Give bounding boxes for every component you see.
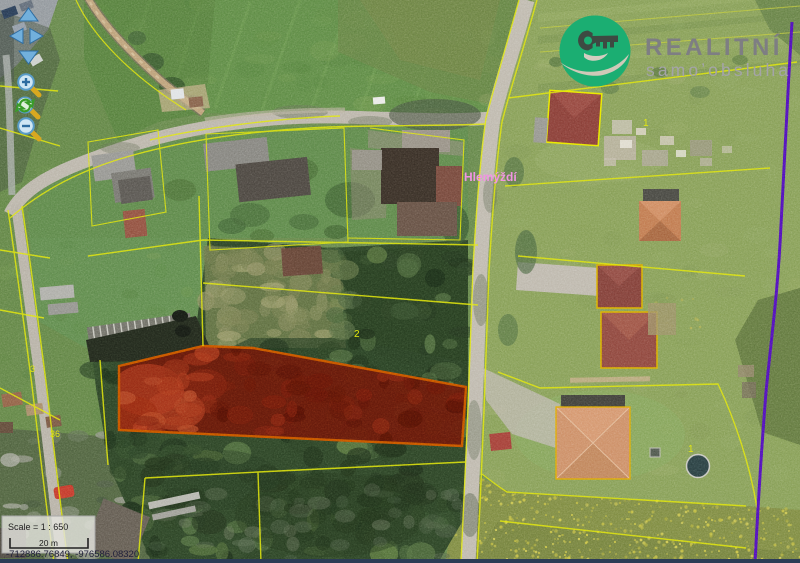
svg-text:-712886.76849, -976586.08320: -712886.76849, -976586.08320: [6, 549, 139, 560]
svg-text:20 m: 20 m: [39, 538, 58, 548]
svg-text:REALITNÍ: REALITNÍ: [645, 33, 783, 61]
svg-text:samoʼobsluha: samoʼobsluha: [646, 60, 791, 80]
svg-text:Scale = 1 : 650: Scale = 1 : 650: [8, 522, 68, 532]
